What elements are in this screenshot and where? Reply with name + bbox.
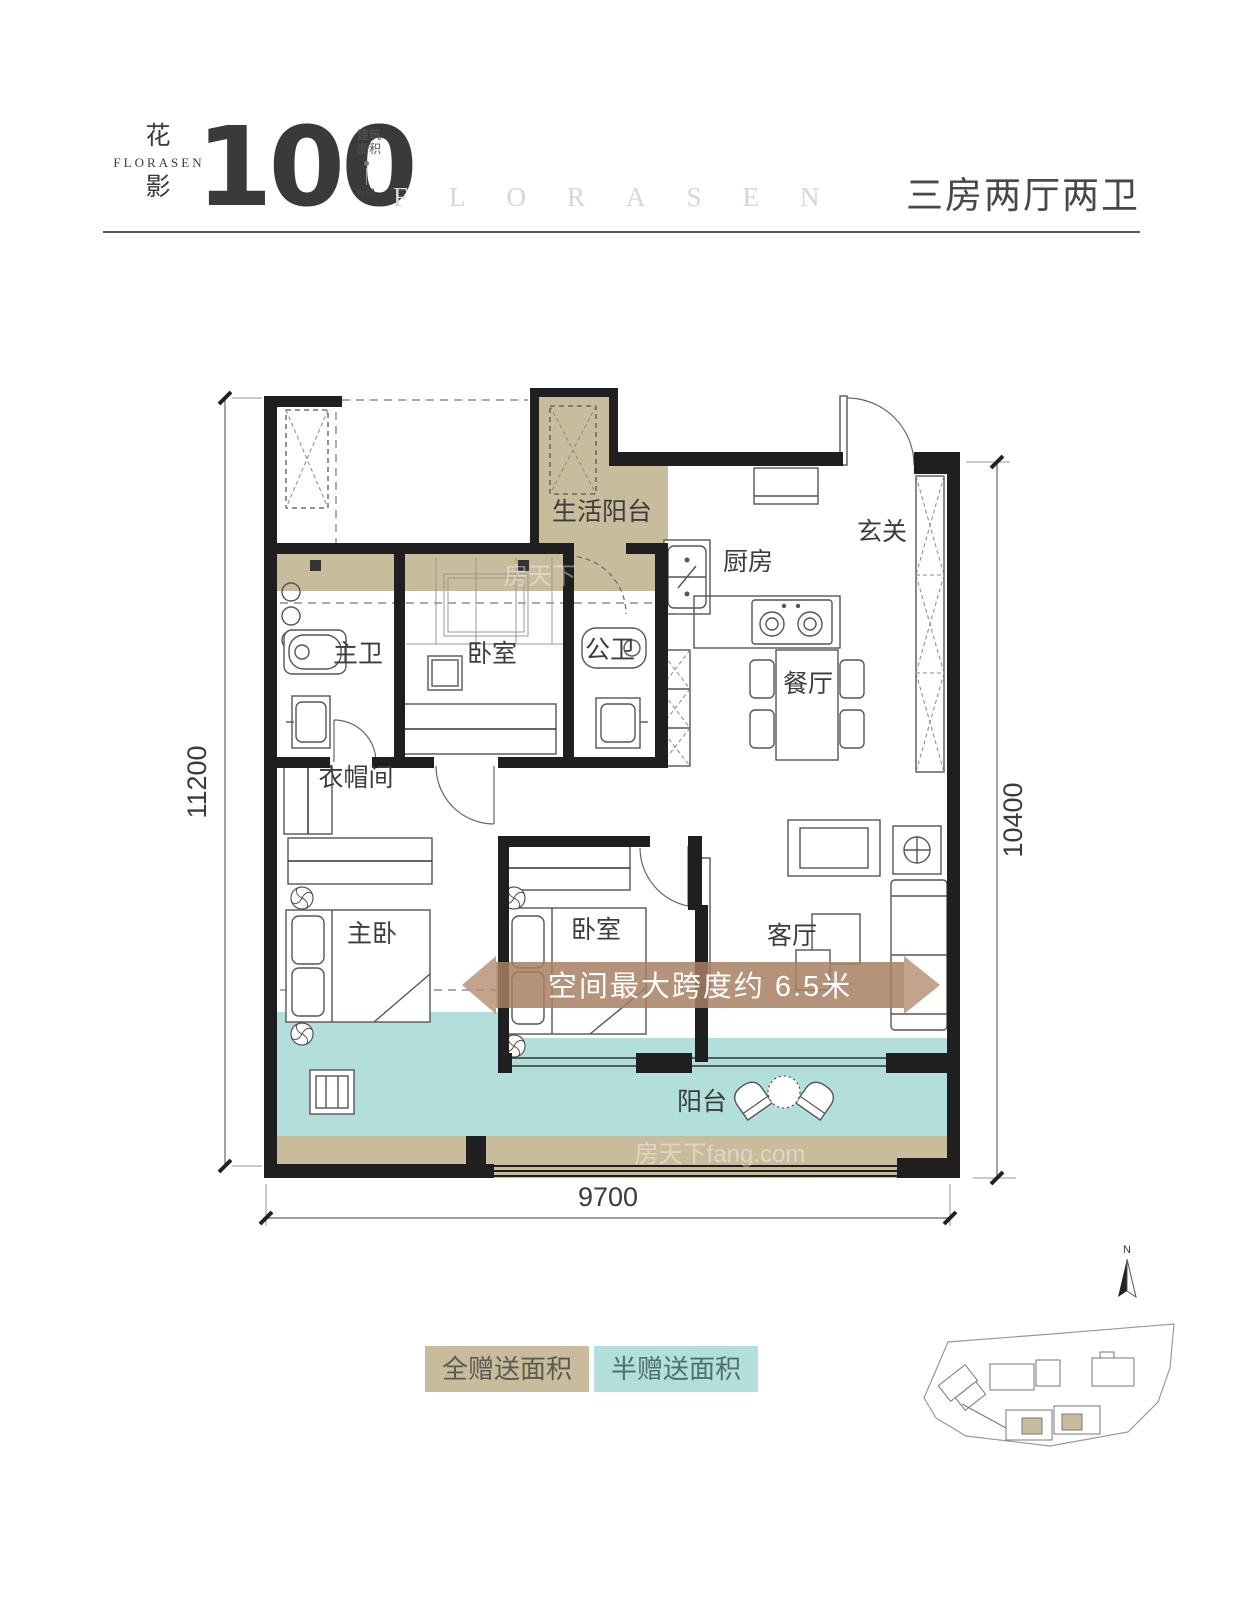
dim-left-value: 11200 [182,745,212,818]
room-label-master-bath: 主卫 [333,640,383,668]
room-label-public-bath: 公卫 [585,636,635,664]
dimension-bottom: 9700 [260,1182,956,1226]
room-label-bedroom-mid: 卧室 [571,916,621,944]
dim-bottom-value: 9700 [578,1182,638,1212]
site-plan [924,1324,1174,1446]
room-label-entry: 玄关 [857,518,907,546]
watermark-bottom: 房天下fang.com [635,1141,806,1168]
ac-duct-boxes [286,406,596,508]
room-label-living: 客厅 [767,922,817,950]
dimension-right: 10400 [966,456,1028,1184]
room-label-master-bedroom: 主卧 [347,920,397,948]
room-label-dining: 餐厅 [783,670,833,698]
room-label-cloakroom: 衣帽间 [318,764,393,792]
legend-full-gift: 全赠送面积 [425,1346,589,1392]
compass-label: N [1123,1244,1131,1256]
room-label-bedroom-top: 卧室 [467,640,517,668]
dim-right-value: 10400 [998,782,1028,857]
room-label-kitchen: 厨房 [723,548,773,576]
master-bedroom-furniture [284,766,432,1045]
room-label-balcony: 阳台 [677,1088,727,1116]
span-banner-text: 空间最大跨度约 6.5米 [548,970,852,1003]
bedroom-top-furniture [400,558,563,824]
bedroom-mid-furniture [503,846,688,1057]
span-banner: 空间最大跨度约 6.5米 [462,956,940,1014]
legend-half-gift: 半赠送面积 [594,1346,758,1392]
room-label-service-balcony: 生活阳台 [552,498,652,526]
watermark-center: 房天下 [504,563,576,590]
dining-furniture [750,650,864,760]
compass-icon: N [1118,1244,1136,1297]
dimension-left: 11200 [182,392,262,1172]
